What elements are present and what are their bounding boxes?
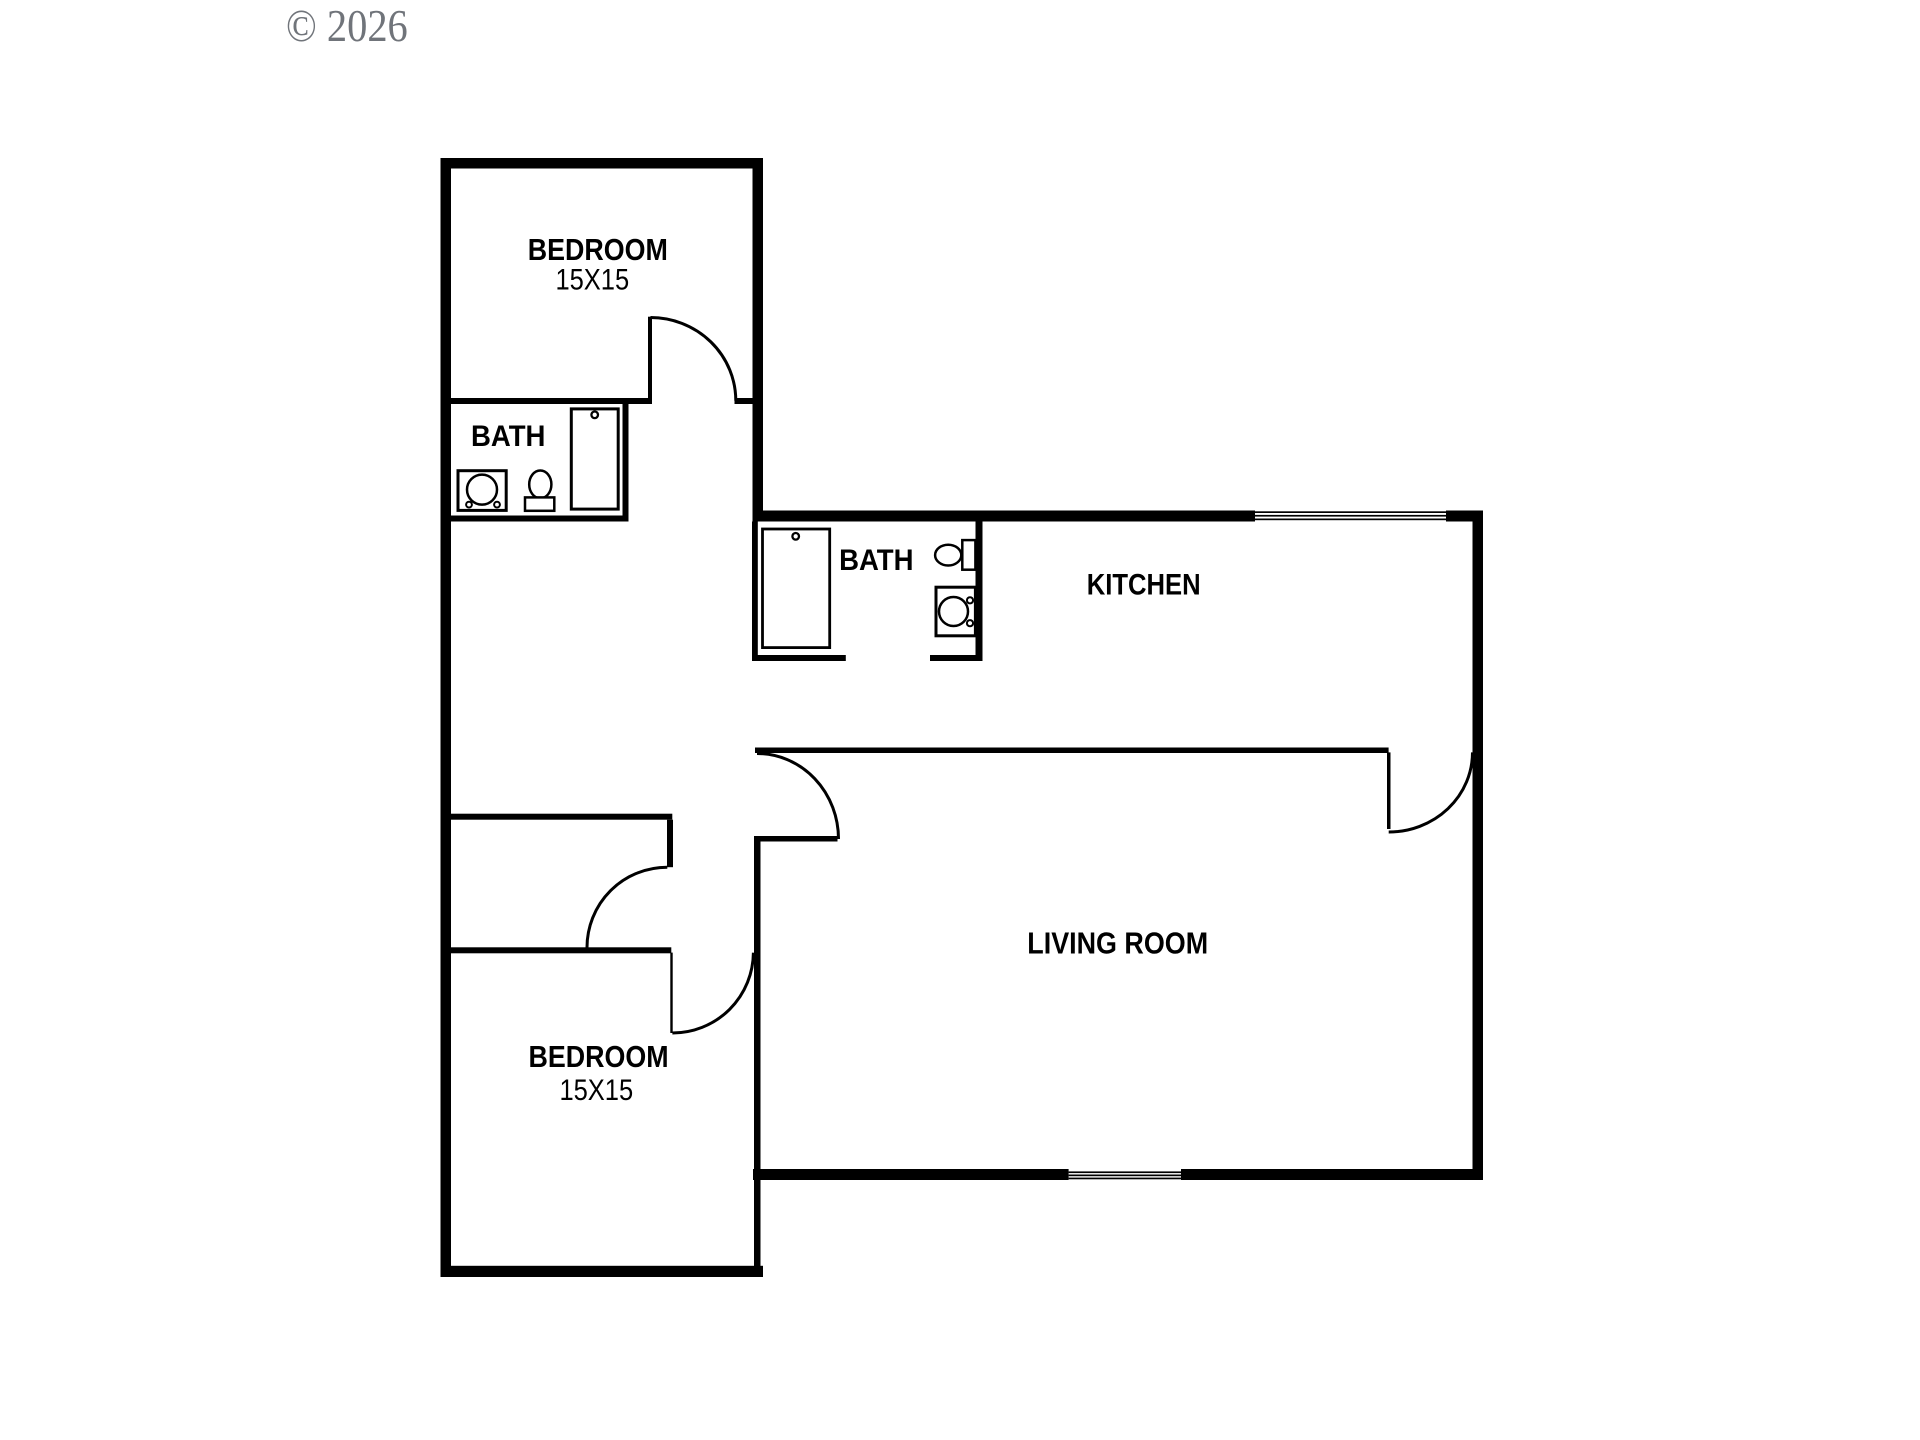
svg-text:BATH: BATH xyxy=(839,544,913,577)
svg-text:15X15: 15X15 xyxy=(559,1073,633,1106)
svg-text:LIVING ROOM: LIVING ROOM xyxy=(1027,927,1208,961)
svg-text:© 2026: © 2026 xyxy=(286,1,408,52)
svg-text:KITCHEN: KITCHEN xyxy=(1087,568,1201,601)
svg-text:BATH: BATH xyxy=(471,420,545,453)
svg-text:BEDROOM: BEDROOM xyxy=(528,1040,668,1074)
svg-text:15X15: 15X15 xyxy=(555,262,629,295)
